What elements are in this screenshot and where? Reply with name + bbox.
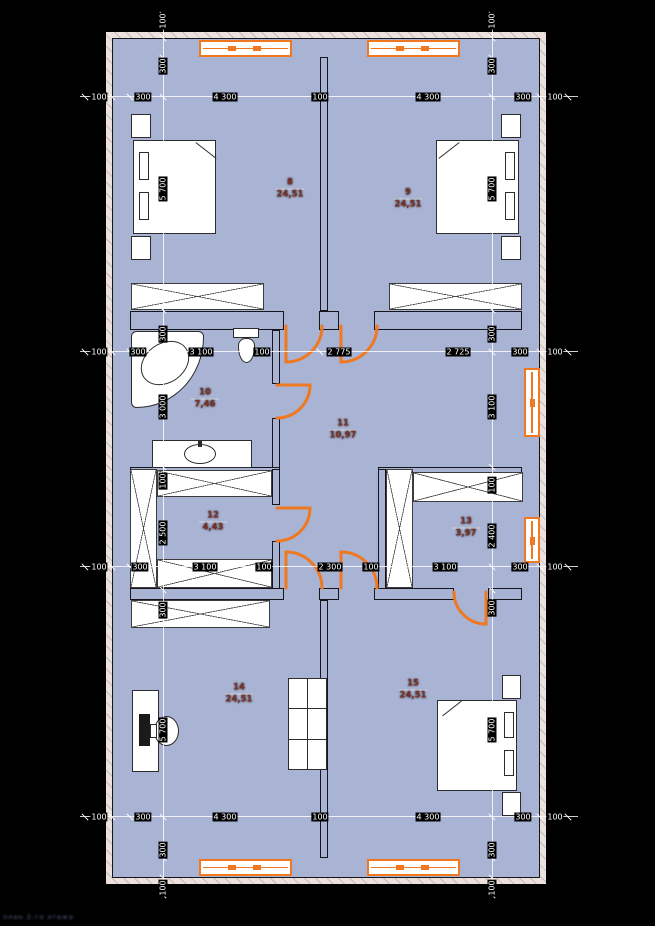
dim-label: 100 [546,348,563,357]
dim-label: 100 [253,348,270,357]
dim-label: 4 300 [416,813,441,822]
dim-label: 300 [488,325,497,342]
dim-label: 300 [488,599,497,616]
dim-label: 300 [511,348,528,357]
room-area: 24,51 [394,201,422,210]
room-area: 10,97 [329,432,357,441]
dim-label: 100 [546,93,563,102]
dim-label: 3 000 [159,395,168,420]
dim-label: 100 [90,348,107,357]
floor-plan-canvas: план 2-го этажа 1003004 3001004 30030010… [0,0,655,926]
dim-label: 100 [159,879,168,896]
dim-label: 100 [362,563,379,572]
dim-label: 3 100 [189,348,214,357]
dim-label: 100 [90,93,107,102]
room-number: 10 [191,389,219,398]
room-label: 1524,51 [399,680,427,701]
dim-label: 2 400 [488,524,497,549]
dim-label: 100 [488,12,497,29]
room-label: 1110,97 [329,420,357,441]
dim-label: 2 300 [318,563,343,572]
dim-label: 300 [134,93,151,102]
room-number: 15 [399,680,427,689]
dim-line-bottom [80,816,578,817]
dim-label: 2 725 [446,348,471,357]
dim-label: 300 [159,601,168,618]
dim-label: 100 [311,93,328,102]
room-number: 8 [276,179,304,188]
dim-label: 300 [159,841,168,858]
dim-label: 5 700 [159,718,168,743]
dim-label: 300 [159,57,168,74]
dim-label: 100 [311,813,328,822]
room-area: 24,51 [276,191,304,200]
dim-label: 100 [546,563,563,572]
room-area: 4,43 [199,524,227,533]
room-label: 1424,51 [225,684,253,705]
dim-label: 100 [159,472,168,489]
dim-label: 100 [90,563,107,572]
dim-label: 2 500 [159,521,168,546]
dim-label: 4 300 [416,93,441,102]
dim-line-left-col [163,14,164,896]
dim-label: 100 [159,12,168,29]
dim-label: 300 [514,813,531,822]
dim-label: 300 [488,57,497,74]
dim-label: 100 [90,813,107,822]
dim-label: 300 [511,563,528,572]
dim-label: 300 [159,325,168,342]
door-storage [454,592,486,624]
dim-label: 3 100 [488,395,497,420]
room-label: 824,51 [276,179,304,200]
room-area: 3,97 [452,530,480,539]
door-swings-layer [0,0,655,926]
dim-label: 100 [488,879,497,896]
corner-watermark: план 2-го этажа [3,913,74,921]
room-number: 14 [225,684,253,693]
door-bathroom [277,385,310,418]
room-number: 12 [199,512,227,521]
dim-label: 5 700 [159,177,168,202]
room-area: 24,51 [399,692,427,701]
dim-line-right-col [492,14,493,896]
room-number: 13 [452,518,480,527]
dim-label: 100 [546,813,563,822]
room-label: 133,97 [452,518,480,539]
room-label: 124,43 [199,512,227,533]
dim-label: 3 100 [433,563,458,572]
dim-label: 300 [131,563,148,572]
dim-label: 100 [488,476,497,493]
dim-line-top [80,96,578,97]
door-bedroom-top-left [286,326,322,362]
room-label: 107,46 [191,389,219,410]
dim-label: 300 [488,841,497,858]
door-bedroom-top-right [341,326,377,362]
room-number: 9 [394,189,422,198]
room-label: 924,51 [394,189,422,210]
dim-label: 5 700 [488,718,497,743]
dim-label: 300 [129,348,146,357]
dim-label: 2 775 [327,348,352,357]
room-area: 24,51 [225,696,253,705]
dim-label: 300 [514,93,531,102]
dim-label: 3 100 [193,563,218,572]
dim-label: 4 300 [213,93,238,102]
room-number: 11 [329,420,357,429]
dim-label: 5 700 [488,177,497,202]
dim-label: 4 300 [213,813,238,822]
dim-label: 300 [134,813,151,822]
door-dressing [277,508,310,541]
room-area: 7,46 [191,401,219,410]
dim-label: 100 [255,563,272,572]
